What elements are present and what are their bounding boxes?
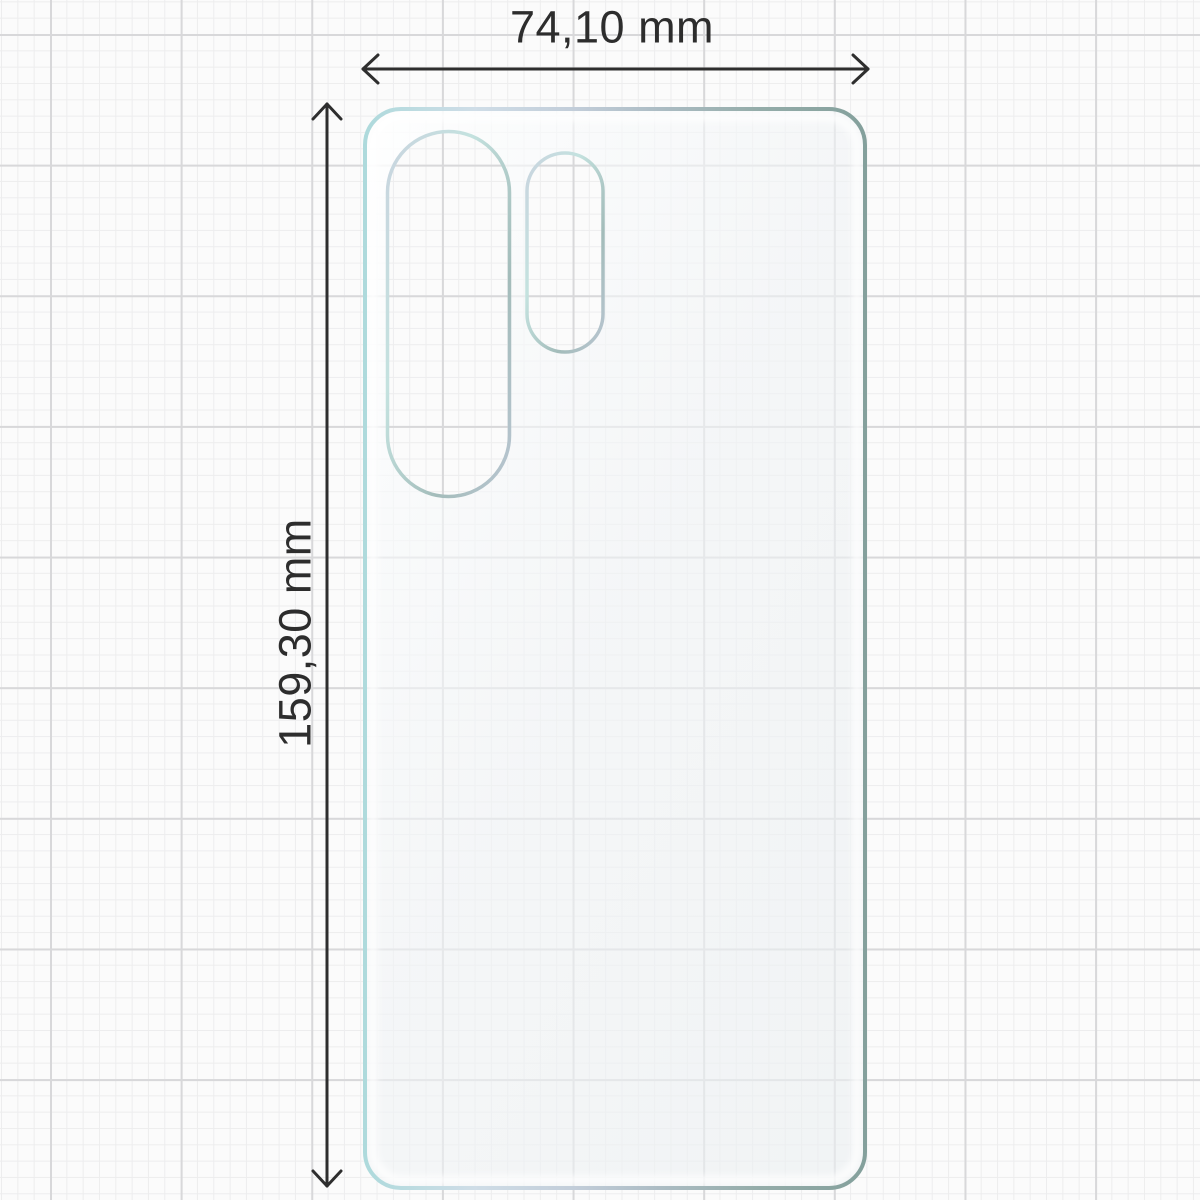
camera-cutout-small xyxy=(527,153,603,352)
camera-cutout-large xyxy=(388,132,510,497)
film-drawing xyxy=(0,0,1200,1200)
film-body xyxy=(365,109,865,1188)
width-arrow xyxy=(363,55,868,83)
dimension-diagram: 74,10 mm 159,30 mm xyxy=(0,0,1200,1200)
height-dimension-label: 159,30 mm xyxy=(270,518,320,748)
width-dimension-label: 74,10 mm xyxy=(510,2,714,52)
